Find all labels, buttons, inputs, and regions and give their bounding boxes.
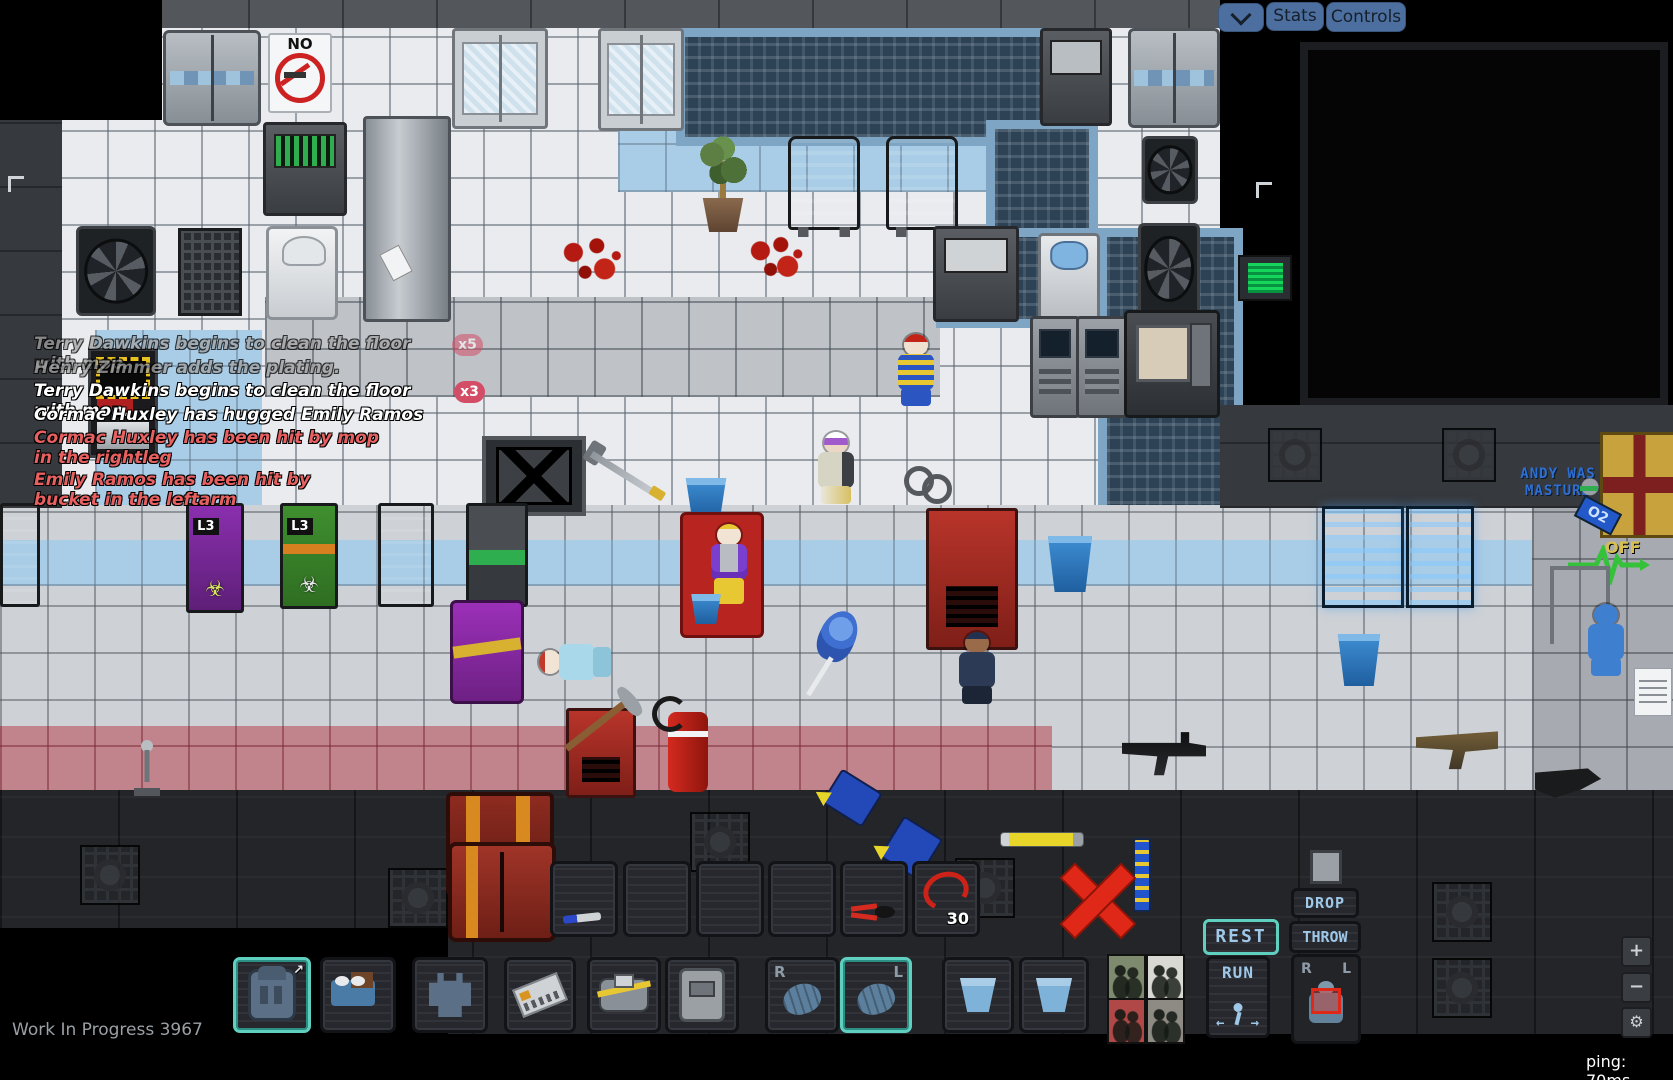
inventory-slot-belt[interactable] [587,957,661,1033]
airlock-door-top-right[interactable] [1128,28,1220,128]
atm-machine-1[interactable] [1030,316,1080,418]
controls-button[interactable]: Controls [1326,2,1406,32]
corner-mark [1256,182,1272,198]
clown-head [904,334,928,356]
right-hand-label: R [774,963,786,981]
doll-right-label: R [1301,961,1312,977]
paper-note[interactable] [1634,668,1672,716]
atm-machine-2[interactable] [1076,316,1128,418]
hotbar-slot-empty-1[interactable] [623,861,691,937]
pocket-item-icon [960,978,996,1012]
right-hand-slot[interactable]: R [765,957,839,1033]
close-x-icon[interactable] [1058,862,1138,940]
ping-text: ping: 70ms [1586,1052,1673,1080]
blue-suited-figure[interactable] [1584,604,1628,674]
left-hand-label: L [893,963,903,981]
yellow-pen[interactable] [1000,832,1084,847]
terry-dawkins[interactable] [700,524,758,658]
intent-help[interactable] [1107,954,1146,1000]
machine-screen [1050,40,1103,75]
pocket-slot-1[interactable] [942,957,1014,1033]
hotbar-slot-screwdriver[interactable] [550,861,618,937]
stats-button[interactable]: Stats [1266,2,1324,31]
version-text: Work In Progress 3967 [12,1020,203,1040]
purple-cart[interactable] [450,600,524,704]
water-cooler[interactable] [1038,233,1100,321]
left-hand-icon [853,978,898,1018]
terry-body [711,544,747,580]
clown-character[interactable] [884,334,948,416]
wall-monitor-green[interactable] [1238,255,1292,301]
run-label: RUN [1222,963,1254,982]
left-hand-slot[interactable]: L [840,957,912,1033]
wall-chip [1432,958,1492,1018]
handcuffs[interactable] [904,462,952,506]
officer-body [959,652,995,688]
biohazard-icon: ☣ [205,577,225,602]
glass-door-left[interactable] [452,28,548,129]
chevron-down-icon [1230,5,1251,26]
torso-target-box[interactable] [1311,988,1341,1014]
white-machine[interactable] [266,226,338,320]
chat-message: Cormac Huxley has been hit by mop in the… [34,428,379,468]
canister-off-label: OFF [1605,538,1640,557]
plant-leaves [696,136,750,198]
wall-chip [1442,428,1496,482]
officer-head [965,632,989,654]
chat-dropdown-button[interactable] [1218,3,1264,32]
inventory-slot-shoes[interactable] [320,957,396,1033]
fan-vent-top-right[interactable] [1142,136,1198,204]
gray-locker-2[interactable] [466,503,528,607]
emily-legs [821,486,851,504]
toolbox[interactable] [448,842,556,942]
biohazard-locker-green[interactable]: L3 ☣ [280,503,338,609]
lying-person-body [559,644,595,680]
dark-locker-left[interactable] [0,503,40,607]
zoom-out-button[interactable]: − [1621,972,1652,1003]
skull-item[interactable] [1578,478,1602,500]
right-hand-icon [779,978,824,1018]
gray-machine-top-right[interactable] [1040,28,1112,126]
clown-body [898,354,934,390]
intent-harm[interactable] [1107,998,1146,1044]
zoom-in-button[interactable]: + [1621,936,1652,967]
glass-door-right[interactable] [598,28,684,131]
wall-chip [1432,882,1492,942]
backpack-icon [248,969,296,1021]
pocket-slot-2[interactable] [1019,957,1089,1033]
cable-coil-count: 30 [947,909,969,928]
screwdriver-icon [563,912,602,924]
terry-head [717,524,741,546]
top-wall [60,0,1220,30]
expand-arrow-icon: ↗ [293,963,304,978]
top-left-void [0,0,162,120]
lounge-chair-2[interactable] [886,136,958,230]
shoes-icon [331,980,375,1006]
rest-button[interactable]: REST [1203,919,1279,955]
shower-column[interactable] [363,116,451,322]
grille-vent[interactable] [178,228,242,316]
blue-cabinet-1[interactable] [1322,506,1404,608]
chat-message: Henry Zimmer adds the plating. [34,358,434,378]
intent-disarm[interactable] [1146,954,1185,1000]
vendor-screen [274,134,336,168]
pocket-item-icon [1036,978,1072,1012]
small-wall-window [1310,850,1342,884]
no-smoking-icon [275,53,325,103]
lounge-chair-1[interactable] [788,136,860,230]
biohazard-icon: ☣ [299,573,319,598]
blood-splatter-1 [550,226,628,292]
suit-icon [429,973,471,1017]
emily-body [818,452,854,488]
fan-vent-left[interactable] [76,226,156,316]
inventory-slot-suit[interactable] [412,957,488,1033]
oxygen-canister[interactable]: O2 OFF [1600,432,1673,538]
chat-repeat-badge: x5 [452,334,483,356]
officer-legs [962,686,992,704]
settings-button[interactable]: ⚙ [1621,1007,1652,1038]
intent-harm-icon [1109,1000,1144,1042]
intent-grab-icon [1148,1000,1183,1042]
airlock-door-top-left[interactable] [163,30,261,126]
fan-vent-right[interactable] [1138,223,1200,315]
chat-message: Emily Ramos has been hit by bucket in th… [34,470,379,510]
inventory-slot-bag[interactable] [665,957,739,1033]
inventory-slot-backpack[interactable]: ↗ [233,957,311,1033]
hotbar-slot-empty-2[interactable] [696,861,764,937]
wall-chip [80,845,140,905]
blue-cabinet-2[interactable] [1406,506,1474,608]
game-viewport: NO L3 ☣ L3 [0,0,1673,1080]
locker-label: L3 [287,518,312,535]
fire-extinguisher[interactable] [668,712,708,792]
lying-person-head [539,650,561,674]
vendor-monitor[interactable] [263,122,347,216]
emily-head [824,432,848,454]
hotbar-slot-empty-3[interactable] [768,861,836,937]
blood-splatter-2 [740,226,808,288]
id-card-icon [512,972,568,1018]
biohazard-locker-purple[interactable]: L3 ☣ [186,503,244,613]
gray-box-machine[interactable] [933,226,1019,322]
corner-mark [8,176,24,192]
metal-stand[interactable] [130,740,164,796]
potted-plant[interactable] [696,136,750,232]
run-button[interactable]: RUN ← → [1206,956,1270,1038]
gray-locker-1[interactable] [378,503,434,607]
bottom-black-strip [0,1034,1673,1080]
right-arrow-icon: → [1251,1015,1260,1031]
red-locker-open[interactable] [926,508,1018,650]
doll-left-label: L [1342,961,1351,977]
body-target-doll[interactable]: R L [1291,954,1361,1044]
arcade-machine[interactable] [1124,310,1220,418]
wirecutters-icon [851,904,895,920]
chat-message: Cormac Huxley has hugged Emily Ramos [34,405,454,425]
drop-button[interactable]: DROP [1291,888,1359,918]
locker-label: L3 [193,518,218,535]
chat-repeat-badge: x3 [454,381,485,403]
security-officer[interactable] [950,632,1004,708]
inventory-slot-id[interactable] [504,957,576,1033]
space-window-panel [1300,42,1668,406]
intent-help-icon [1109,956,1144,998]
left-arrow-icon: ← [1216,1015,1225,1031]
emily-ramos[interactable] [810,432,862,512]
hotbar-slot-cable-coil[interactable]: 30 [912,861,980,937]
hotbar-slot-wirecutters[interactable] [840,861,908,937]
clown-legs [901,388,931,406]
bag-icon [679,968,725,1022]
intent-grab[interactable] [1146,998,1185,1044]
no-smoking-sign: NO [268,33,332,113]
wall-chip [388,868,448,928]
intent-disarm-icon [1148,956,1183,998]
no-smoking-label: NO [270,35,330,53]
throw-button[interactable]: THROW [1289,921,1361,953]
belt-icon [599,978,649,1012]
wall-chip [1268,428,1322,482]
